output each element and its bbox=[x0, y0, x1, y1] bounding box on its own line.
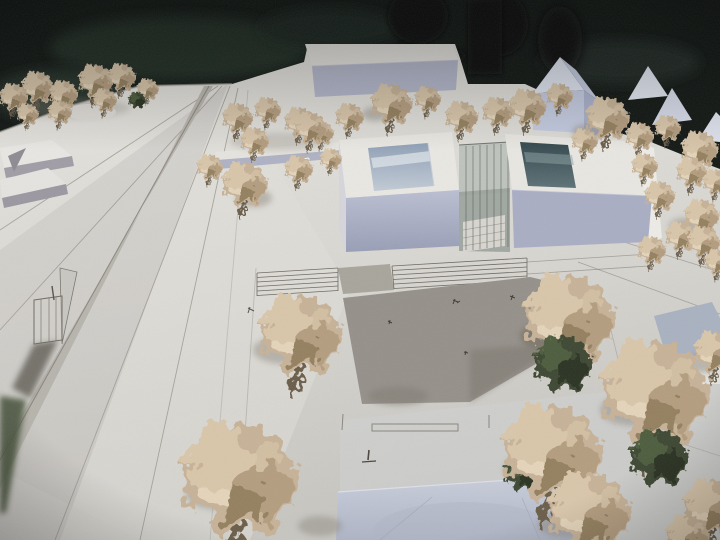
film-grain bbox=[0, 0, 720, 540]
architectural-model-photo bbox=[0, 0, 720, 540]
photo-frame bbox=[0, 0, 720, 540]
